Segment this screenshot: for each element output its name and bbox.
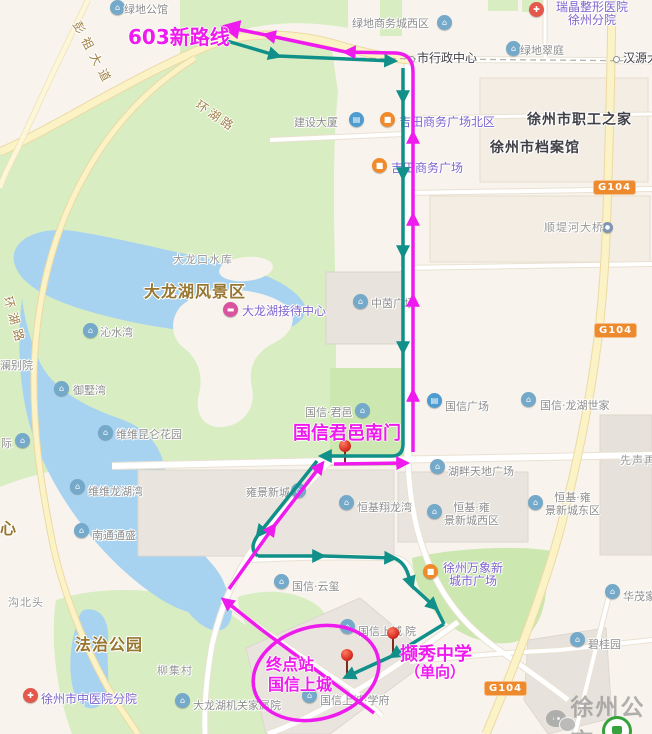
- annotation-layer: 603新路线 国信君邑南门 撷秀中学 （单向） 终点站 国信上城: [0, 0, 652, 734]
- map-canvas[interactable]: ⌂绿地公馆⌂绿地商务城西区✚瑞晶整形医院徐州分院⌂绿地翠庭市行政中心汉源大▤建设…: [0, 0, 652, 734]
- watermark: 徐州公交: [546, 688, 652, 734]
- terminal-label-line2: 国信上城: [268, 671, 332, 695]
- new-route-label: 603新路线: [128, 21, 230, 50]
- wechat-icon: [546, 708, 570, 734]
- stop-label-junyi-south-gate: 国信君邑南门: [293, 419, 401, 445]
- oneway-note: （单向）: [405, 661, 465, 682]
